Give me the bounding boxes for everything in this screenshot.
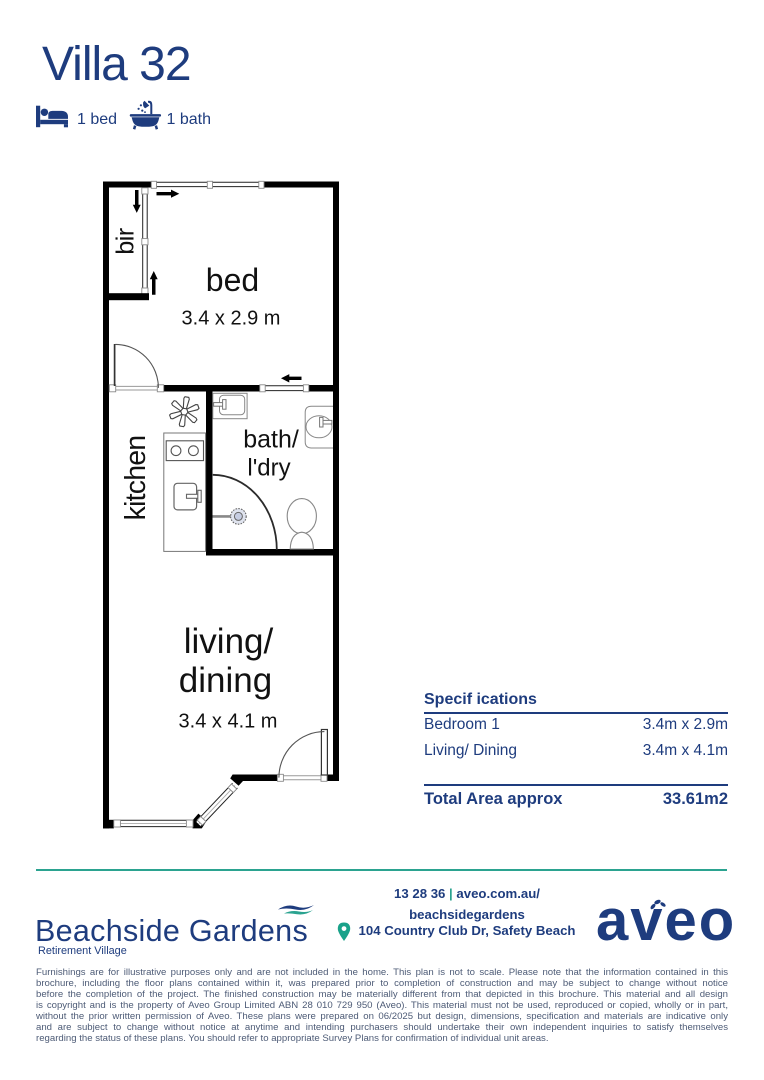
svg-text:bir: bir (112, 228, 140, 254)
svg-text:living/: living/ (184, 622, 274, 661)
svg-text:bed: bed (206, 262, 259, 298)
svg-text:l'dry: l'dry (247, 455, 290, 482)
svg-text:3.4 x 4.1 m: 3.4 x 4.1 m (179, 711, 278, 733)
svg-text:dining: dining (179, 661, 272, 700)
svg-text:kitchen: kitchen (120, 436, 152, 521)
svg-text:bath/: bath/ (243, 426, 299, 454)
svg-text:3.4 x 2.9 m: 3.4 x 2.9 m (182, 308, 281, 330)
